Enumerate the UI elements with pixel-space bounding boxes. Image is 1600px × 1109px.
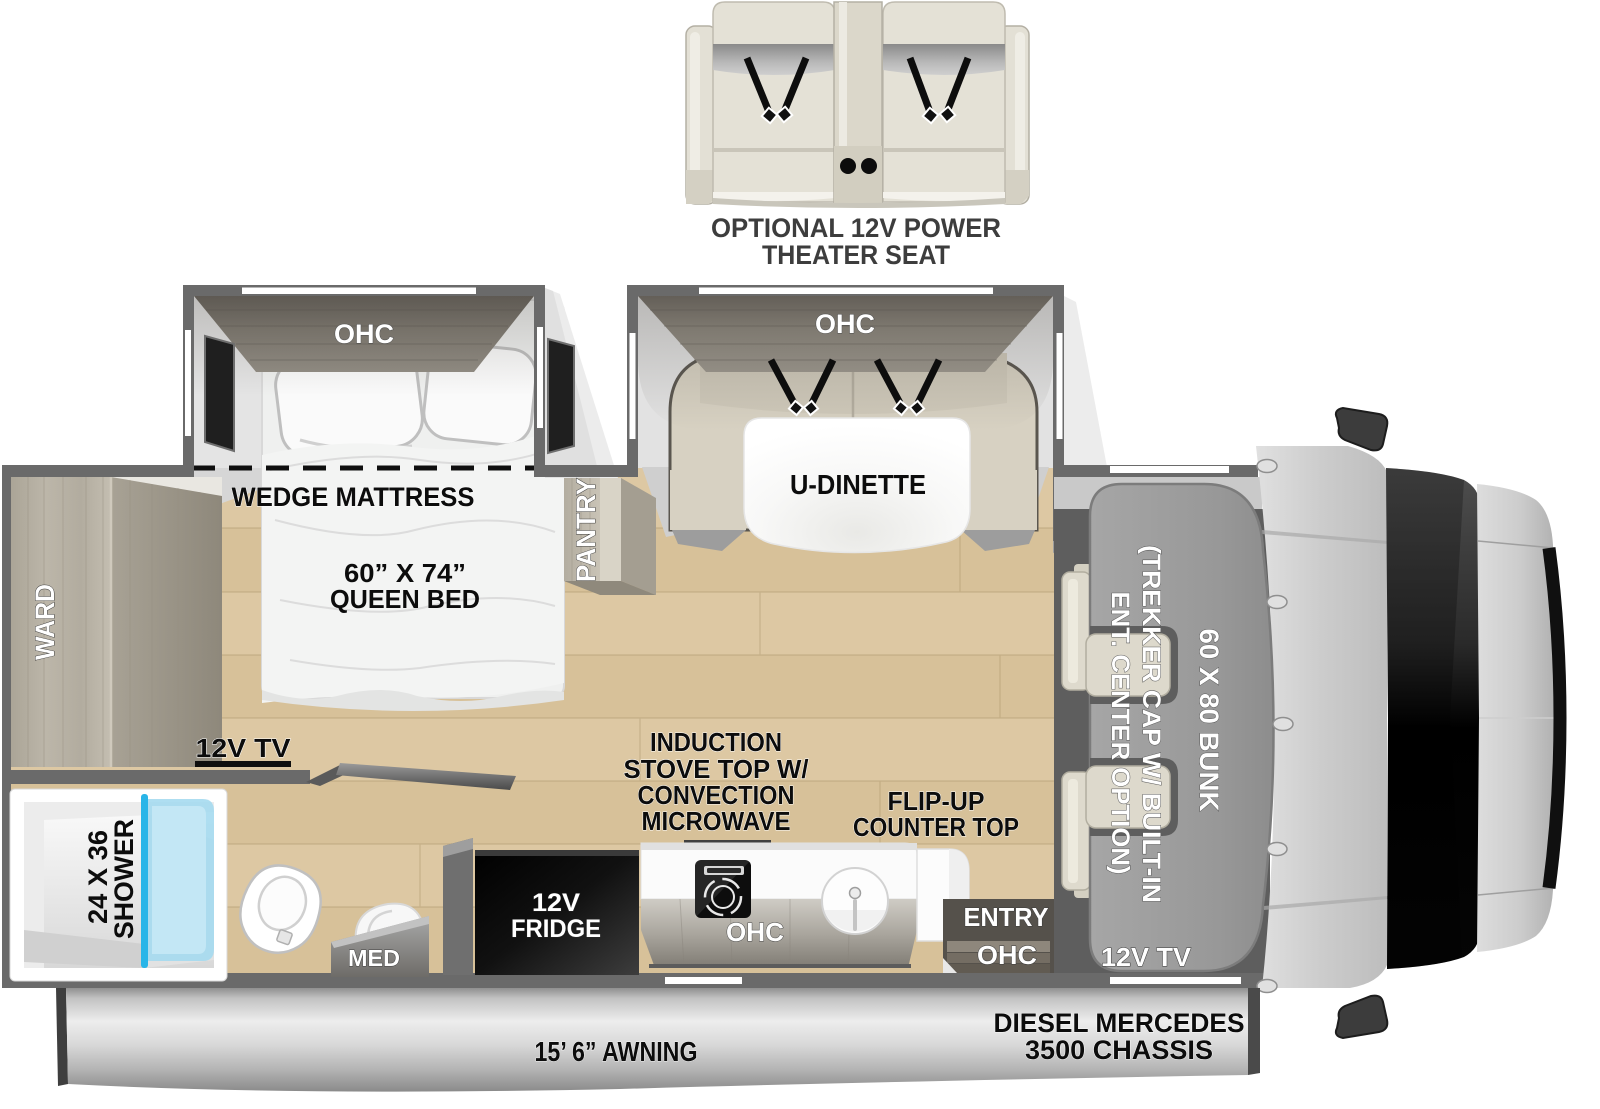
- svg-text:12V TV: 12V TV: [196, 733, 292, 763]
- svg-text:MED: MED: [348, 945, 400, 971]
- svg-text:OHC: OHC: [334, 319, 394, 349]
- svg-text:FRIDGE: FRIDGE: [511, 915, 601, 943]
- svg-text:OHC: OHC: [977, 940, 1037, 970]
- svg-text:DIESEL MERCEDES: DIESEL MERCEDES: [994, 1008, 1245, 1038]
- svg-text:PANTRY: PANTRY: [571, 478, 601, 582]
- svg-text:WARD: WARD: [30, 584, 60, 660]
- svg-text:SHOWER: SHOWER: [109, 819, 139, 939]
- svg-text:QUEEN BED: QUEEN BED: [330, 584, 480, 614]
- svg-text:12V: 12V: [532, 889, 580, 917]
- svg-text:(TREKKER CAP W/ BUILT-IN: (TREKKER CAP W/ BUILT-IN: [1137, 545, 1165, 903]
- svg-text:60 X 80 BUNK: 60 X 80 BUNK: [1194, 629, 1224, 813]
- svg-text:ENT. CENTER OPTION): ENT. CENTER OPTION): [1106, 592, 1134, 875]
- svg-text:3500 CHASSIS: 3500 CHASSIS: [1025, 1035, 1213, 1065]
- svg-text:OPTIONAL 12V POWER: OPTIONAL 12V POWER: [711, 213, 1001, 243]
- svg-text:MICROWAVE: MICROWAVE: [642, 806, 791, 836]
- svg-text:ENTRY: ENTRY: [964, 902, 1049, 932]
- svg-text:12V TV: 12V TV: [1101, 942, 1192, 972]
- svg-text:15’ 6” AWNING: 15’ 6” AWNING: [535, 1036, 698, 1067]
- svg-text:THEATER SEAT: THEATER SEAT: [762, 240, 950, 270]
- svg-text:INDUCTION: INDUCTION: [650, 727, 782, 757]
- svg-text:U-DINETTE: U-DINETTE: [790, 469, 926, 500]
- svg-text:WEDGE MATTRESS: WEDGE MATTRESS: [232, 482, 475, 512]
- svg-text:OHC: OHC: [815, 309, 875, 339]
- svg-text:COUNTER TOP: COUNTER TOP: [853, 812, 1019, 842]
- svg-text:OHC: OHC: [726, 917, 784, 947]
